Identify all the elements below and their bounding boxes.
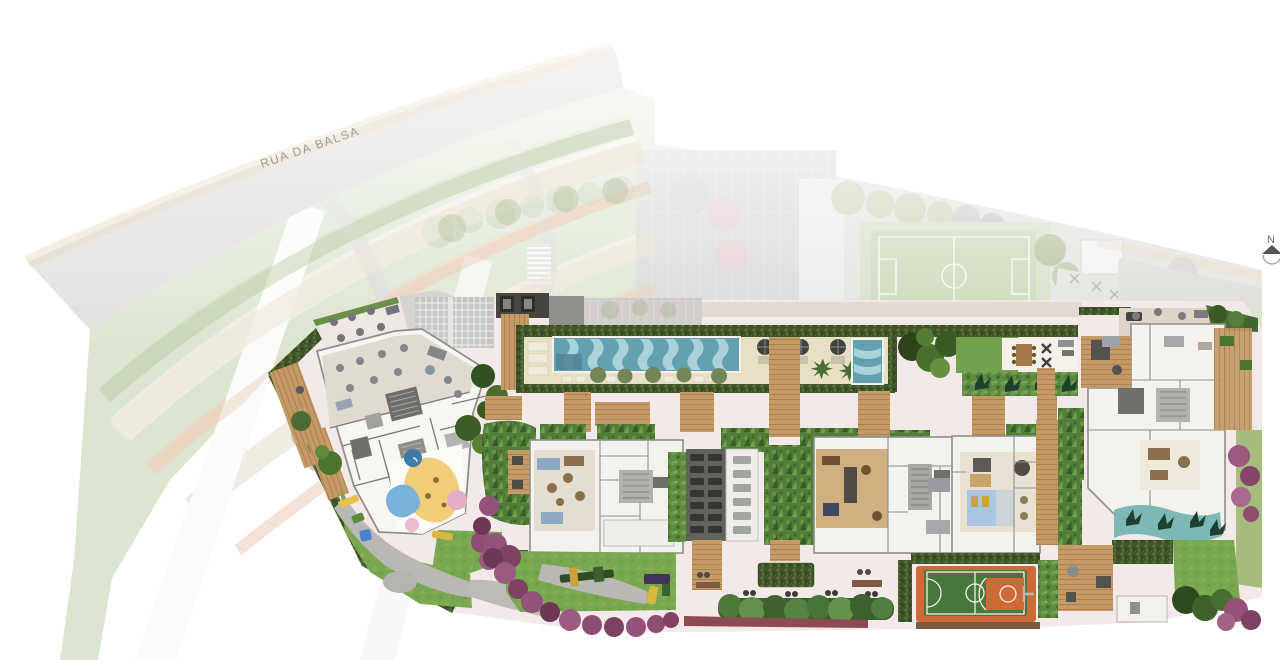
- svg-text:N: N: [1267, 234, 1275, 246]
